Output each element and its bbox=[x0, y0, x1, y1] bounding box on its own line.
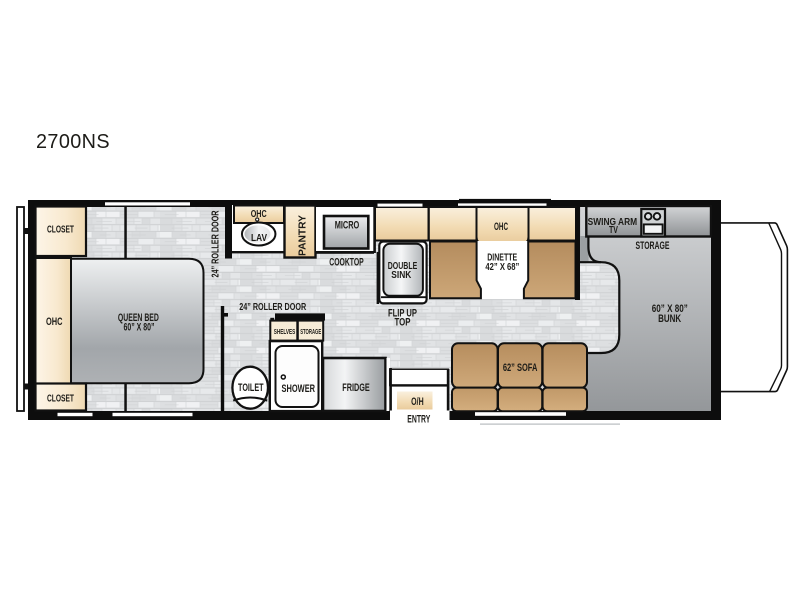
svg-text:24” ROLLER DOOR: 24” ROLLER DOOR bbox=[211, 210, 222, 278]
svg-text:OHC: OHC bbox=[46, 316, 63, 328]
svg-text:TOP: TOP bbox=[395, 316, 411, 328]
svg-text:OHC: OHC bbox=[494, 221, 508, 233]
svg-text:CLOSET: CLOSET bbox=[47, 224, 74, 236]
svg-text:STORAGE: STORAGE bbox=[300, 327, 321, 336]
svg-text:42” X 68”: 42” X 68” bbox=[485, 262, 519, 273]
svg-text:FRIDGE: FRIDGE bbox=[342, 382, 370, 394]
svg-text:COOKTOP: COOKTOP bbox=[329, 256, 364, 268]
svg-text:TV: TV bbox=[609, 225, 618, 236]
svg-text:BUNK: BUNK bbox=[658, 313, 681, 325]
svg-text:SINK: SINK bbox=[391, 269, 411, 281]
svg-text:24” ROLLER DOOR: 24” ROLLER DOOR bbox=[239, 301, 306, 313]
svg-text:TOILET: TOILET bbox=[238, 382, 264, 394]
svg-text:STORAGE: STORAGE bbox=[636, 240, 670, 252]
svg-text:MICRO: MICRO bbox=[335, 220, 360, 232]
svg-text:2700NS: 2700NS bbox=[36, 130, 110, 153]
svg-text:62” SOFA: 62” SOFA bbox=[503, 362, 538, 374]
svg-text:SHELVES: SHELVES bbox=[274, 327, 296, 336]
svg-text:ENTRY: ENTRY bbox=[407, 413, 430, 425]
svg-text:60” X 80”: 60” X 80” bbox=[124, 322, 155, 334]
svg-text:O/H: O/H bbox=[411, 396, 424, 408]
svg-text:SHOWER: SHOWER bbox=[282, 383, 316, 395]
svg-text:LAV: LAV bbox=[251, 232, 267, 244]
svg-text:CLOSET: CLOSET bbox=[47, 393, 74, 405]
svg-text:PANTRY: PANTRY bbox=[298, 215, 309, 256]
